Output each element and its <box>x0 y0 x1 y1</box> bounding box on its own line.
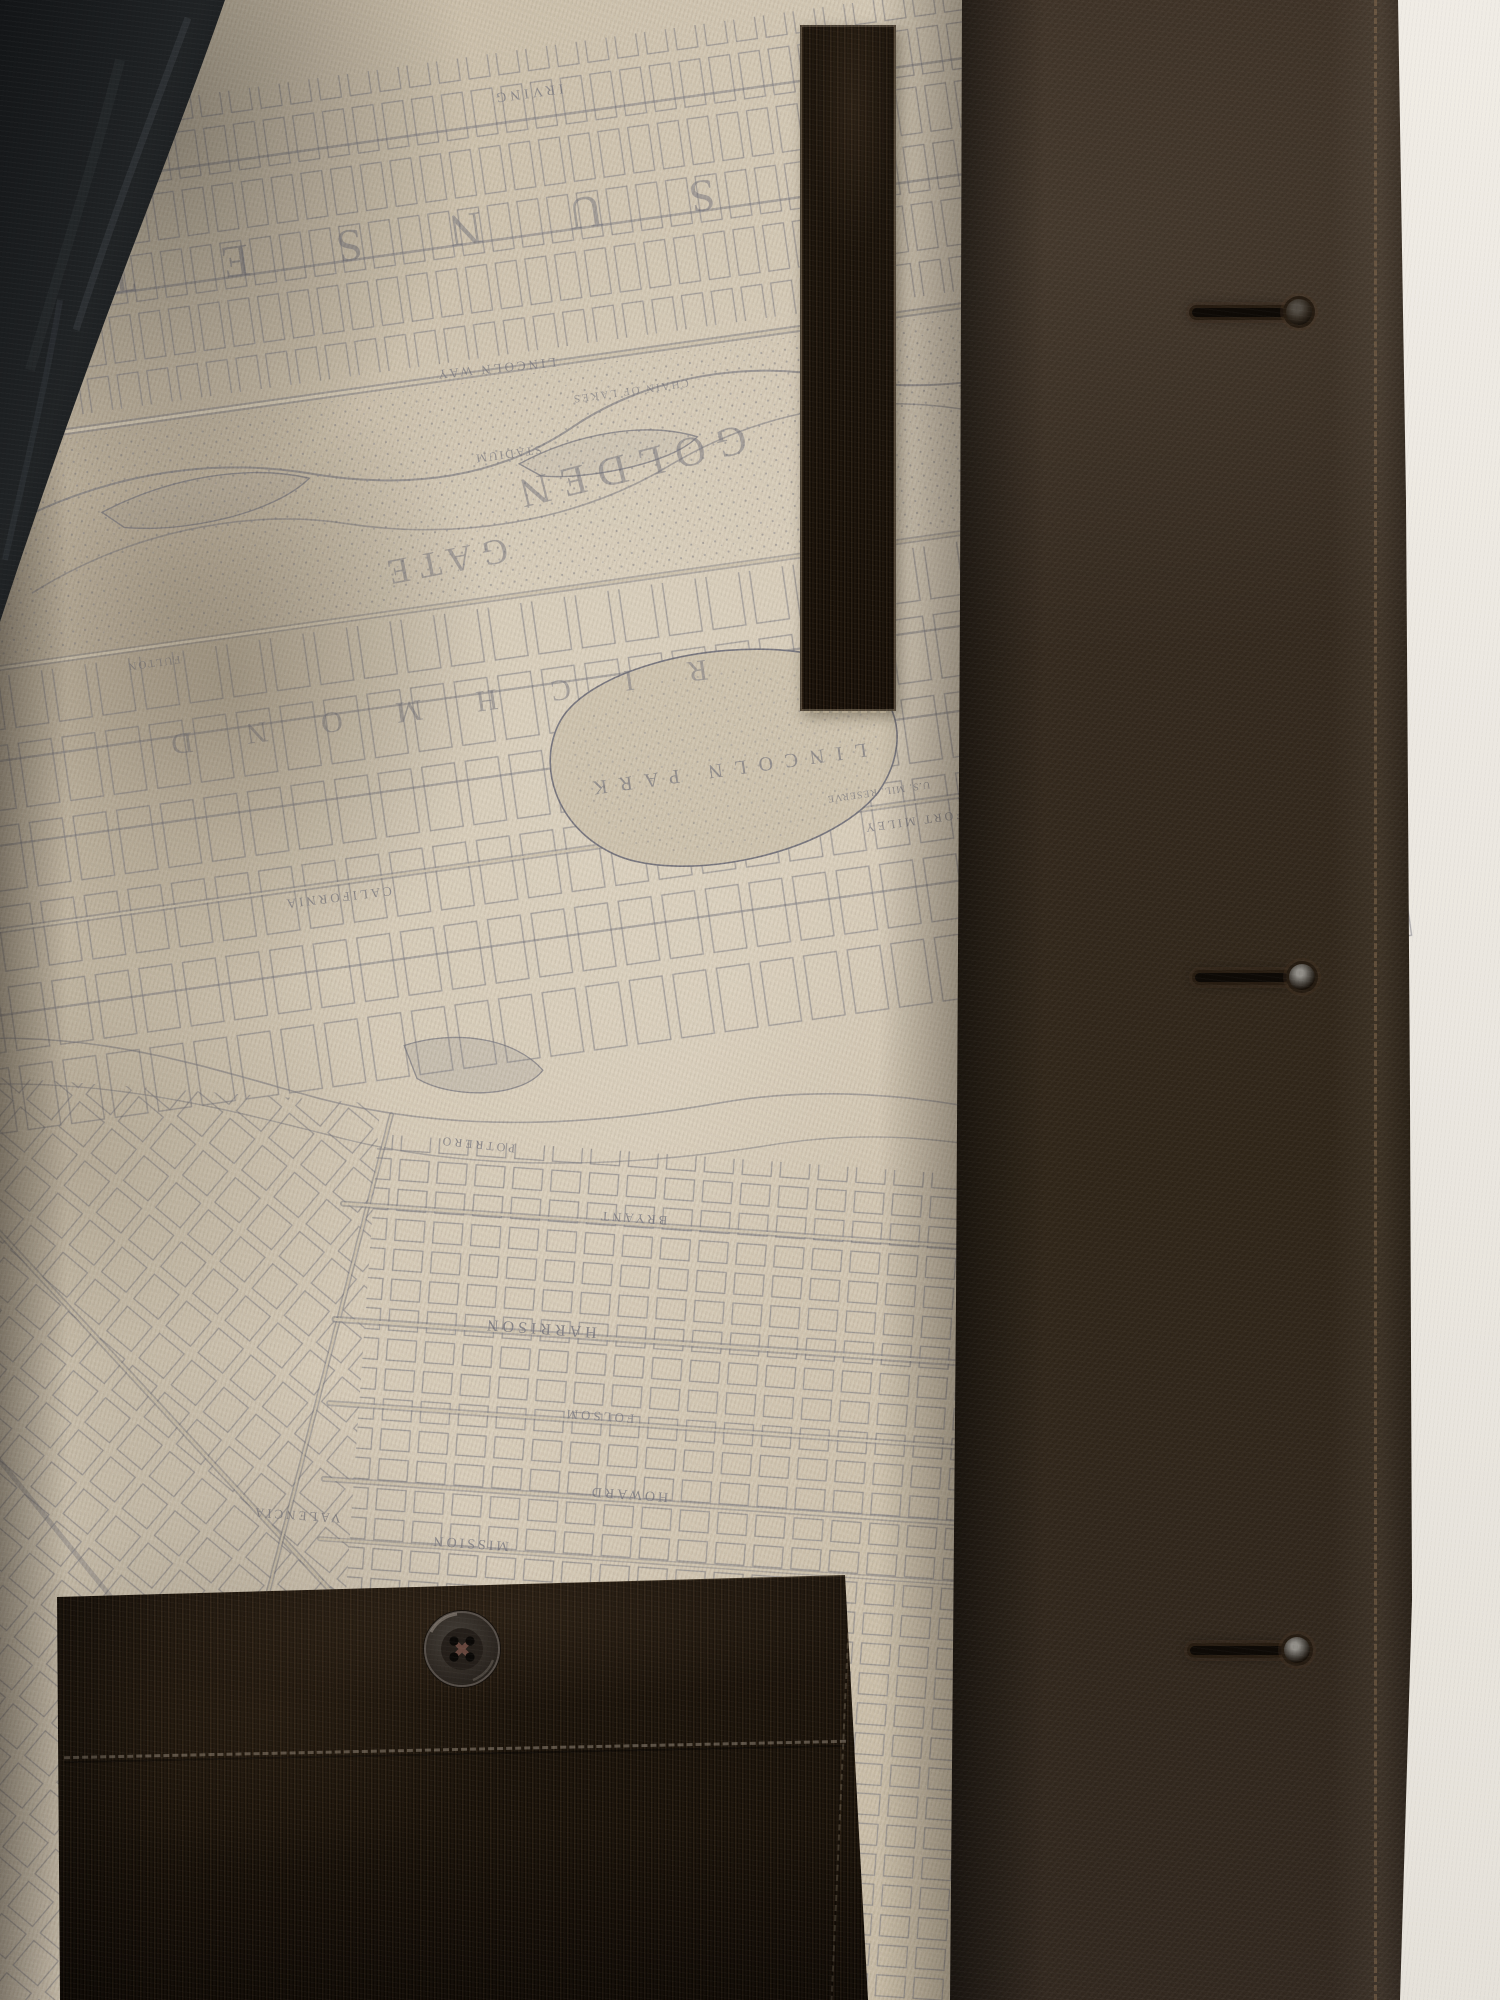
buttonhole-bottom <box>1190 1635 1310 1665</box>
buttonhole-slit <box>1190 1646 1284 1655</box>
buttonhole-top <box>1192 297 1312 327</box>
placket-edge-shading <box>1330 0 1415 2000</box>
horn-button <box>421 1608 503 1690</box>
buttonhole-keyhole-eye <box>1284 1637 1310 1663</box>
satin-sleeve-lining <box>0 0 340 720</box>
buttonhole-keyhole-eye <box>1289 964 1315 990</box>
edge-topstitch-line <box>1374 0 1377 2000</box>
buttonhole-slit <box>1195 973 1289 982</box>
buttonhole-keyhole-eye <box>1286 299 1312 325</box>
buttonhole-slit <box>1192 308 1286 317</box>
buttonhole-middle <box>1195 962 1315 992</box>
placket-inner-shadow <box>950 0 1045 2000</box>
welt-pocket-corduroy <box>800 25 896 711</box>
jacket-interior-photo: SUNSET IRVING LINCOLN WAY GOLDEN GATE ST… <box>0 0 1500 2000</box>
